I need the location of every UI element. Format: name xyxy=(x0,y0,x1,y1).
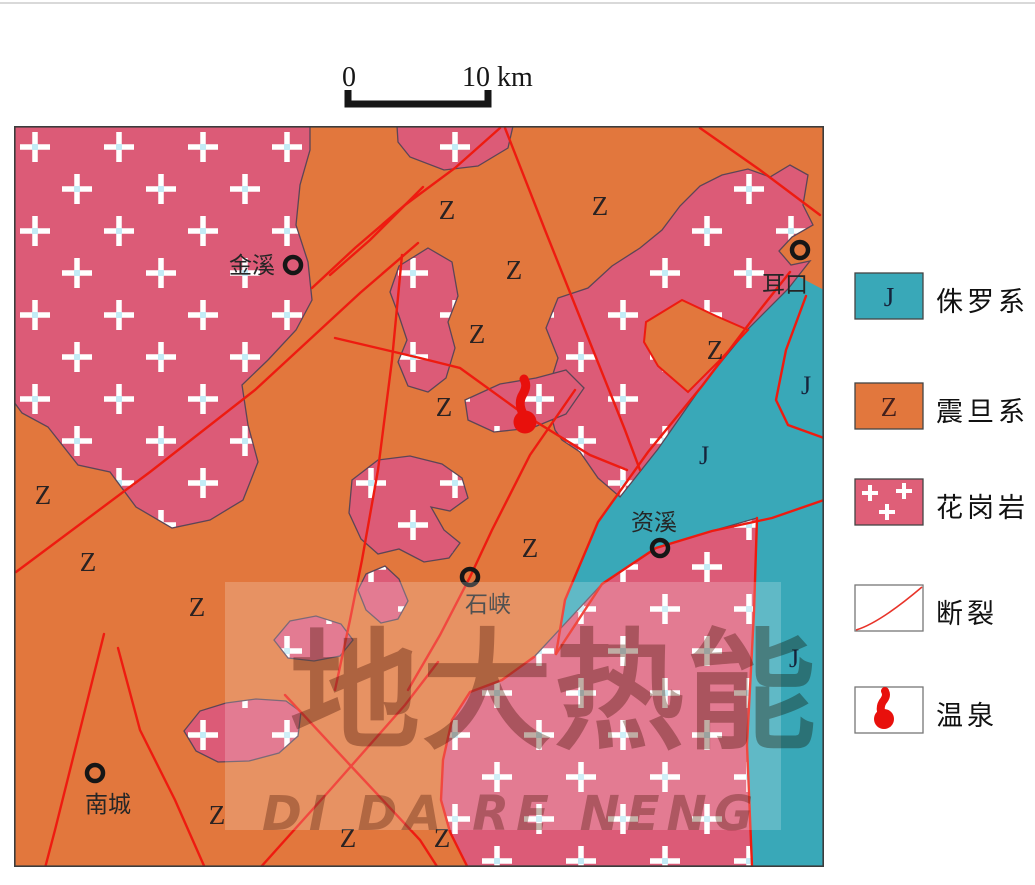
legend-swatch-sinian: Z xyxy=(854,382,924,430)
geological-map-page: 0 10 km xyxy=(0,0,1035,885)
unit-label-z: Z xyxy=(340,823,357,853)
legend-row-granite: 花岗岩 xyxy=(840,478,1035,528)
scale-bar: 0 10 km xyxy=(330,52,580,116)
town-label-zixi: 资溪 xyxy=(631,510,677,535)
jurassic-strip xyxy=(747,500,824,866)
geologic-map: Z Z Z Z Z Z Z Z Z Z Z Z Z J J J 金溪 耳口 资溪 xyxy=(14,126,824,867)
legend-swatch-fault xyxy=(854,584,924,632)
unit-label-z: Z xyxy=(707,335,724,365)
unit-label-z: Z xyxy=(80,547,97,577)
town-label-nancheng: 南城 xyxy=(85,792,131,817)
unit-label-j: J xyxy=(801,371,811,400)
legend-row-sinian: Z 震旦系 xyxy=(840,382,1035,432)
legend-label-jurassic: 侏罗系 xyxy=(936,280,1029,319)
unit-label-z: Z xyxy=(592,191,609,221)
unit-label-z: Z xyxy=(506,255,523,285)
legend-swatch-spring xyxy=(854,686,924,734)
legend-swatch-granite xyxy=(854,478,924,526)
unit-label-z: Z xyxy=(209,800,226,830)
unit-label-z: Z xyxy=(436,392,453,422)
legend-row-spring: 温泉 xyxy=(840,686,1035,736)
map-legend: J 侏罗系 Z 震旦系 花岗岩 xyxy=(840,0,1035,885)
unit-label-j: J xyxy=(699,441,709,470)
unit-label-z: Z xyxy=(439,195,456,225)
unit-label-j: J xyxy=(789,644,799,673)
legend-key-j: J xyxy=(884,282,895,312)
unit-label-z: Z xyxy=(469,319,486,349)
town-label-shixia: 石峡 xyxy=(465,592,511,617)
legend-row-fault: 断裂 xyxy=(840,584,1035,634)
legend-label-spring: 温泉 xyxy=(936,694,998,733)
legend-row-jurassic: J 侏罗系 xyxy=(840,272,1035,322)
legend-swatch-jurassic: J xyxy=(854,272,924,320)
town-label-jinxi: 金溪 xyxy=(229,253,275,278)
unit-label-z: Z xyxy=(434,823,451,853)
unit-label-z: Z xyxy=(35,480,52,510)
unit-label-z: Z xyxy=(522,533,539,563)
legend-label-sinian: 震旦系 xyxy=(936,390,1029,429)
legend-label-fault: 断裂 xyxy=(936,592,998,631)
legend-label-granite: 花岗岩 xyxy=(936,486,1029,525)
scale-zero-label: 0 xyxy=(342,62,356,93)
legend-key-z: Z xyxy=(881,392,898,422)
town-label-erkou: 耳口 xyxy=(762,272,808,297)
scale-ten-km-label: 10 km xyxy=(462,62,533,93)
unit-label-z: Z xyxy=(189,592,206,622)
